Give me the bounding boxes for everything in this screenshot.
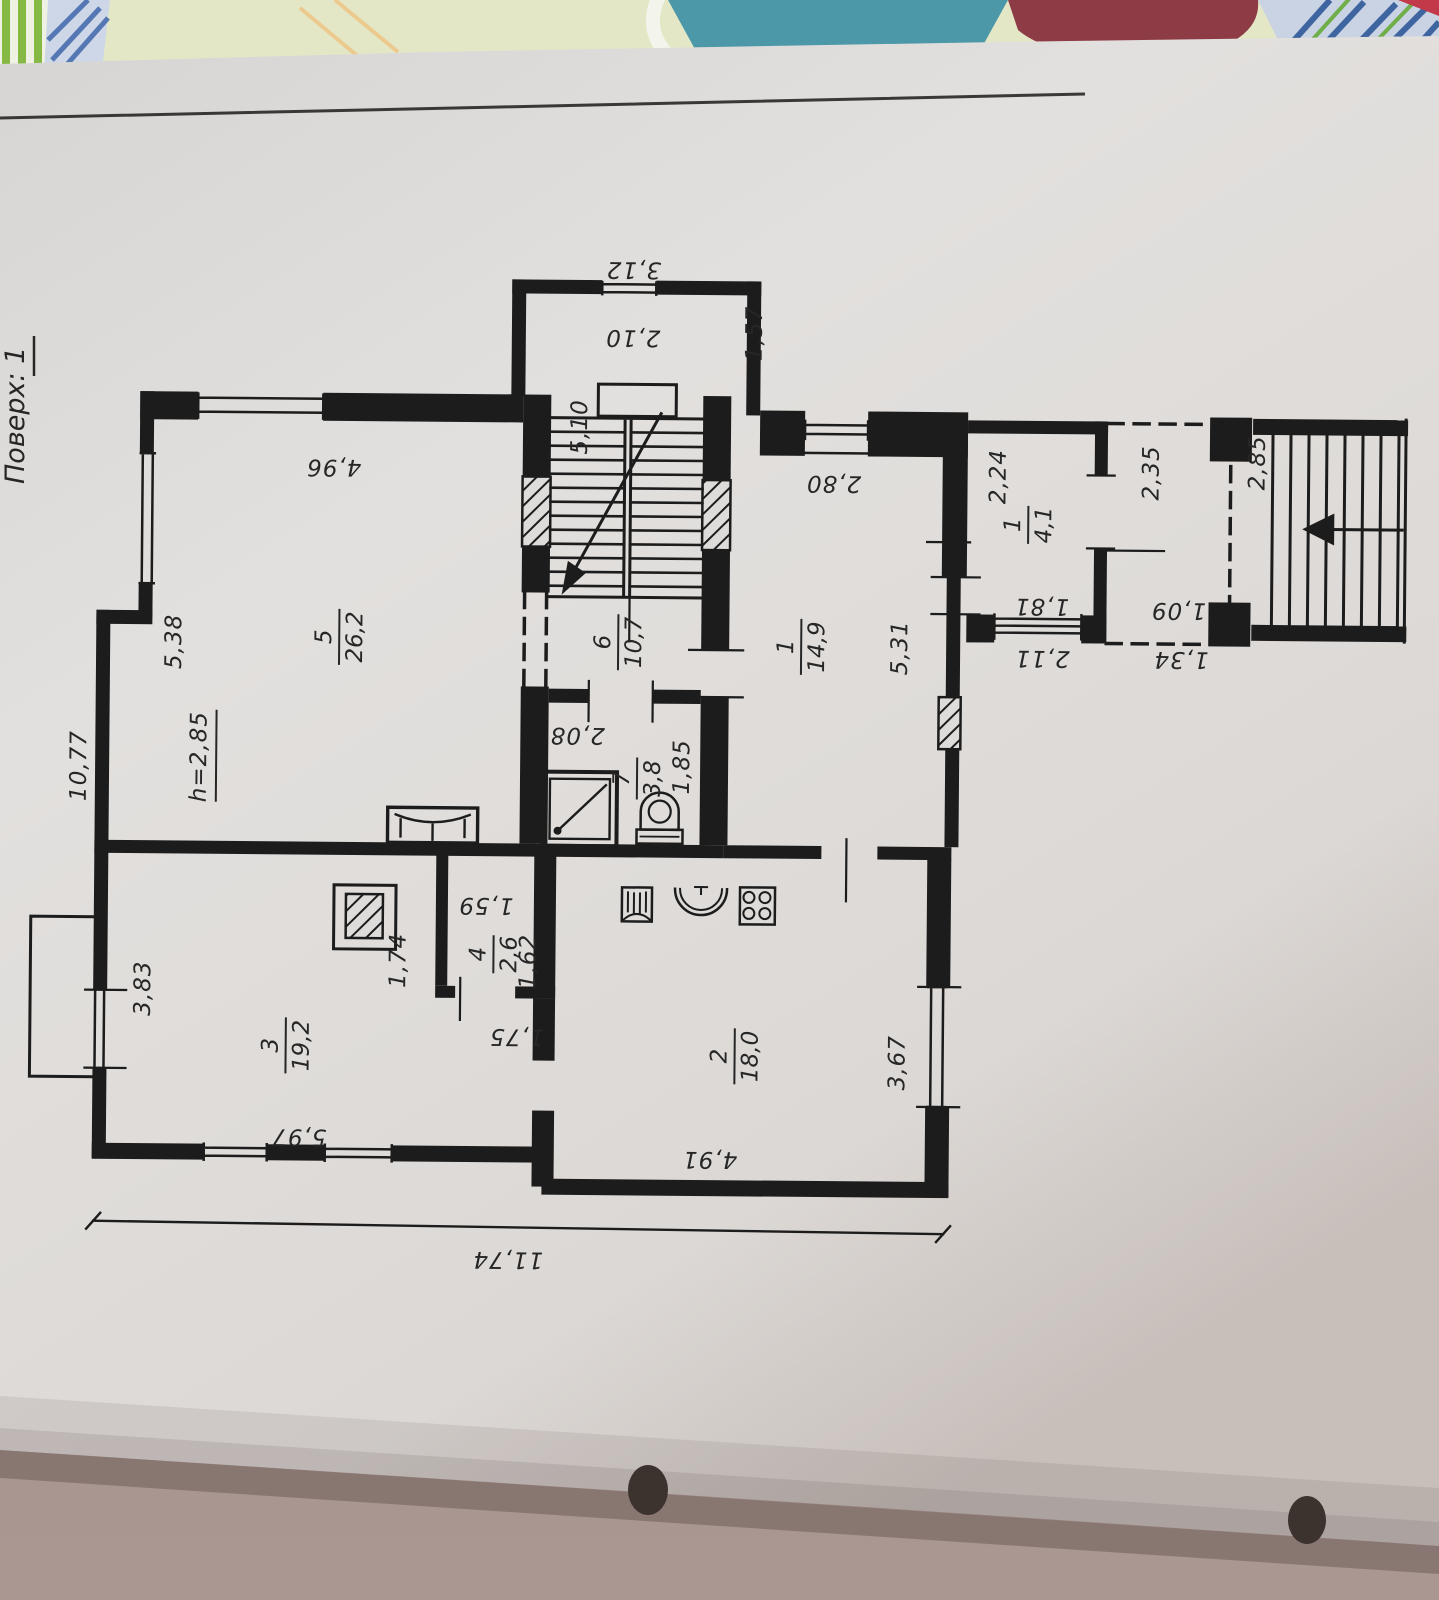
svg-text:14,9: 14,9 (804, 621, 830, 672)
svg-text:10,7: 10,7 (621, 616, 647, 668)
svg-text:3,8: 3,8 (640, 760, 666, 797)
svg-text:4: 4 (465, 947, 491, 962)
dim-bedroom-depth: 5,31 (887, 620, 913, 675)
svg-text:19,2: 19,2 (288, 1020, 314, 1071)
dim-porch-inner: 1,09 (1151, 597, 1206, 623)
dim-vestibule-inner: 1,81 (1014, 593, 1069, 619)
dim-room3-side: 3,83 (130, 960, 156, 1015)
dim-kitchen-width: 4,91 (682, 1146, 737, 1172)
svg-text:18,0: 18,0 (737, 1031, 763, 1082)
dim-porch-depth: 2,35 (1138, 445, 1164, 500)
svg-text:1: 1 (773, 639, 799, 654)
svg-text:7: 7 (609, 771, 635, 786)
dim-bay-width: 3,12 (606, 256, 661, 282)
dim-stairwell: 5,10 (567, 399, 593, 454)
dim-pantry-width: 1,59 (458, 892, 513, 918)
svg-text:1: 1 (1000, 517, 1026, 532)
dim-pantry-door: 1,75 (489, 1023, 544, 1049)
dim-vestibule-side: 2,24 (985, 449, 1011, 504)
dim-total-width: 11,74 (472, 1246, 543, 1273)
svg-text:h=2,85: h=2,85 (186, 711, 213, 802)
svg-text:4,1: 4,1 (1031, 507, 1057, 544)
dim-left-total: 10,77 (66, 730, 93, 801)
svg-text:Поверх: 1: Поверх: 1 (0, 347, 31, 484)
floor-title: Поверх: 1 (0, 336, 34, 484)
dim-kitchen-depth: 3,67 (884, 1035, 910, 1090)
binder-hole-right (1288, 1496, 1326, 1544)
dim-landing: 2,10 (605, 324, 660, 350)
svg-text:6: 6 (590, 635, 616, 650)
svg-text:2: 2 (707, 1049, 733, 1064)
photo-of-floorplan: 5 26,2 6 10,7 7 3,8 1 14,9 1 (0, 0, 1439, 1600)
dim-porch-outer: 1,34 (1153, 646, 1208, 672)
dim-pantry-depth: 1,62 (515, 934, 541, 989)
svg-text:26,2: 26,2 (342, 611, 368, 662)
binder-hole-left (628, 1465, 668, 1515)
dim-bedroom-width: 2,80 (806, 470, 861, 496)
dim-room3-width: 5,97 (271, 1123, 326, 1149)
dim-living-depth: 5,38 (161, 614, 187, 669)
svg-text:3: 3 (258, 1038, 284, 1053)
dim-bay-side: 1,57 (742, 306, 768, 361)
dim-bath-depth: 1,85 (669, 739, 695, 794)
dim-bath-width: 2,08 (550, 722, 605, 748)
dim-nook: 1,74 (385, 933, 411, 988)
svg-text:5: 5 (311, 629, 337, 644)
door-bedroom-kitchen (846, 839, 847, 901)
floorplan-svg: 5 26,2 6 10,7 7 3,8 1 14,9 1 (0, 0, 1439, 1600)
dim-vestibule-outer: 2,11 (1014, 645, 1069, 671)
dim-ext-stairs: 2,85 (1245, 435, 1271, 490)
dim-living-width: 4,96 (306, 454, 361, 480)
